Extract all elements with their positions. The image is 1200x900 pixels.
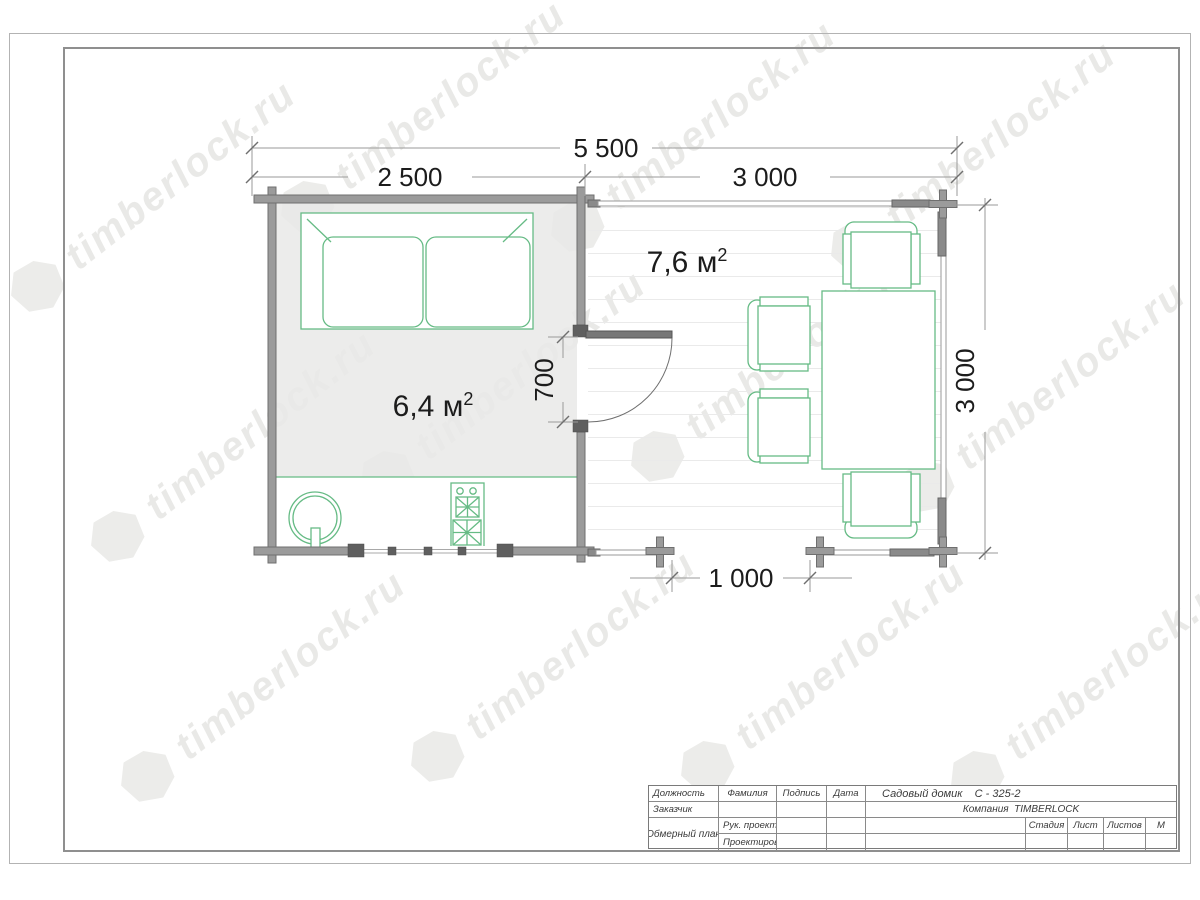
empty-cell xyxy=(1068,834,1104,850)
title-block: Должность Фамилия Подпись Дата Садовый д… xyxy=(648,785,1177,849)
sheets-header: Листов xyxy=(1104,818,1146,834)
floor-plan: 6,4 м2 7,6 м2 5 500 2 500 3 000 3 000 xyxy=(0,0,1200,900)
signature-header: Подпись xyxy=(777,786,827,802)
stove xyxy=(451,483,484,548)
svg-text:3 000: 3 000 xyxy=(732,162,797,192)
empty-cell xyxy=(777,834,827,850)
dimension-depth: 3 000 xyxy=(950,198,998,560)
designer-label: Проектировщик xyxy=(719,834,777,850)
chair-left-1 xyxy=(748,297,810,371)
empty-cell xyxy=(777,818,827,834)
svg-text:2 500: 2 500 xyxy=(377,162,442,192)
svg-text:700: 700 xyxy=(529,358,559,401)
chair-left-2 xyxy=(748,389,810,463)
company-name: Компания TIMBERLOCK xyxy=(866,802,1176,818)
empty-cell xyxy=(827,818,866,834)
date-header: Дата xyxy=(827,786,866,802)
empty-cell xyxy=(827,802,866,818)
terrace-area-label: 7,6 м2 xyxy=(647,245,728,279)
sofa xyxy=(301,213,533,329)
svg-text:3 000: 3 000 xyxy=(950,348,980,413)
drawing-name: Обмерный план xyxy=(649,818,719,850)
chair-top xyxy=(843,222,920,288)
empty-cell xyxy=(777,802,827,818)
stage-header: Стадия xyxy=(1026,818,1068,834)
surname-header: Фамилия xyxy=(719,786,777,802)
empty-cell xyxy=(1104,834,1146,850)
customer-label: Заказчик xyxy=(649,802,719,818)
chair-bottom xyxy=(843,472,920,538)
scale-header: М xyxy=(1146,818,1176,834)
dining-table xyxy=(822,291,935,469)
sheet-header: Лист xyxy=(1068,818,1104,834)
dimension-cabin-terrace-widths: 2 500 3 000 xyxy=(246,162,963,196)
empty-cell xyxy=(866,834,1026,850)
empty-cell xyxy=(1146,834,1176,850)
empty-cell xyxy=(1026,834,1068,850)
drawing-sheet: { "watermark": { "text": "timberlock.ru"… xyxy=(0,0,1200,900)
svg-text:5 500: 5 500 xyxy=(573,133,638,163)
cabin-area-label: 6,4 м2 xyxy=(393,389,474,423)
svg-text:1 000: 1 000 xyxy=(708,563,773,593)
project-title: Садовый домик С - 325-2 xyxy=(866,786,1176,802)
position-header: Должность xyxy=(649,786,719,802)
empty-cell xyxy=(827,834,866,850)
dimension-total-width: 5 500 xyxy=(246,133,963,196)
project-manager-label: Рук. проекта xyxy=(719,818,777,834)
empty-cell xyxy=(719,802,777,818)
empty-cell xyxy=(866,818,1026,834)
